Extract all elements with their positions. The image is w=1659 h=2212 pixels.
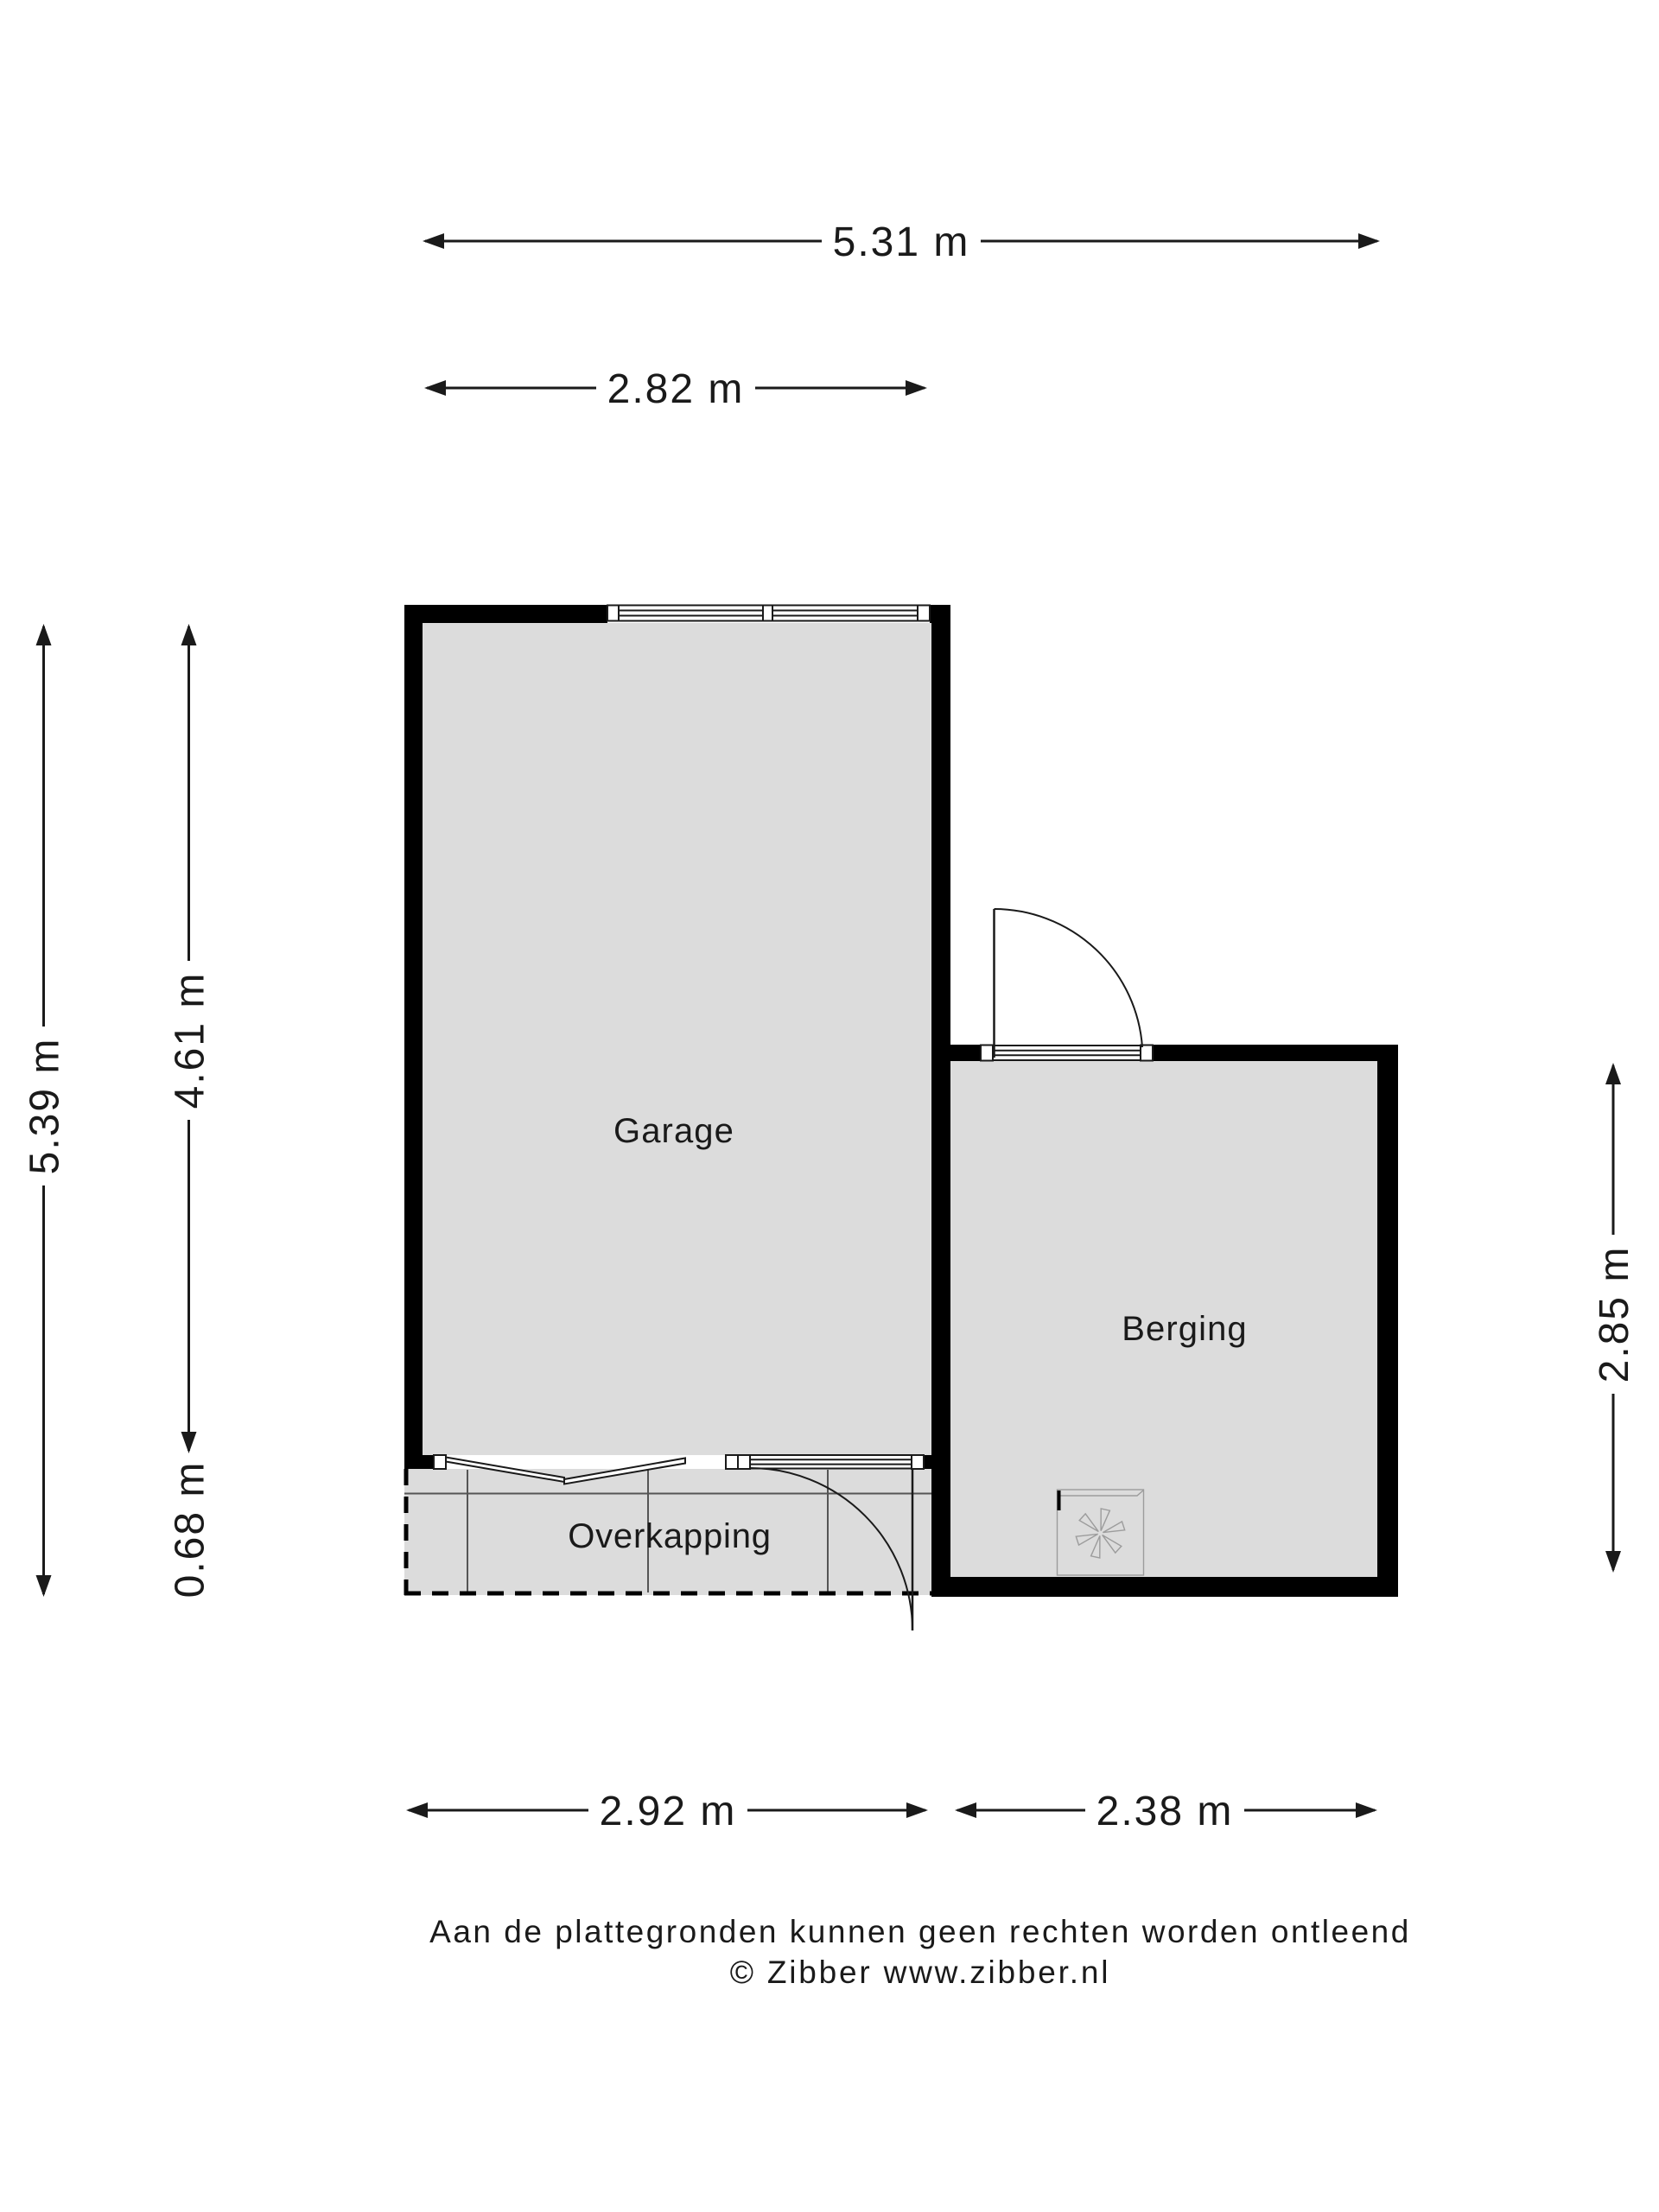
svg-text:2.82 m: 2.82 m bbox=[607, 366, 745, 412]
svg-text:© Zibber www.zibber.nl: © Zibber www.zibber.nl bbox=[730, 1955, 1111, 1990]
svg-text:5.39 m: 5.39 m bbox=[22, 1038, 68, 1175]
svg-text:2.92 m: 2.92 m bbox=[600, 1789, 737, 1834]
svg-text:4.61 m: 4.61 m bbox=[168, 972, 213, 1109]
svg-text:0.68 m: 0.68 m bbox=[168, 1461, 213, 1599]
svg-text:2.85 m: 2.85 m bbox=[1592, 1246, 1637, 1383]
svg-text:Garage: Garage bbox=[613, 1112, 734, 1150]
svg-text:Overkapping: Overkapping bbox=[568, 1517, 772, 1555]
svg-text:5.31 m: 5.31 m bbox=[833, 219, 970, 265]
svg-text:2.38 m: 2.38 m bbox=[1096, 1789, 1234, 1834]
svg-text:Berging: Berging bbox=[1122, 1310, 1248, 1348]
svg-text:Aan de plattegronden kunnen ge: Aan de plattegronden kunnen geen rechten… bbox=[429, 1914, 1411, 1949]
